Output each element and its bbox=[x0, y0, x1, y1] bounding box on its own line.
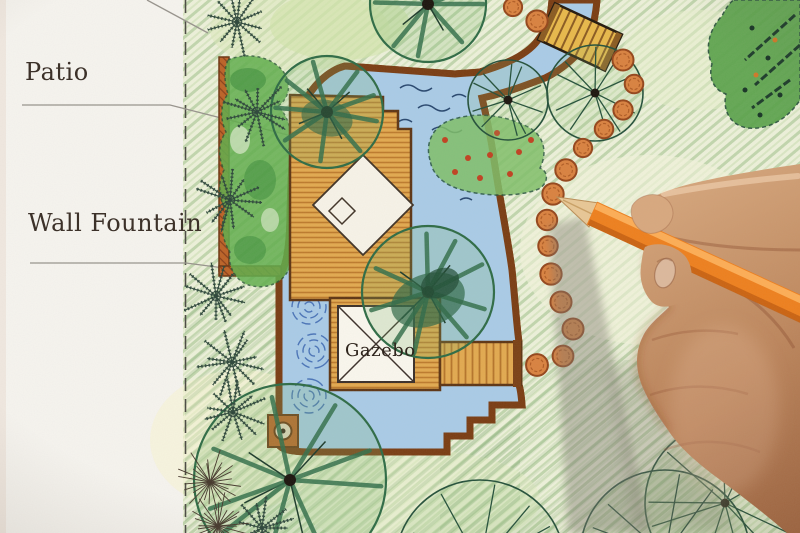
photo-grain bbox=[0, 0, 800, 533]
label-patio: Patio bbox=[25, 60, 89, 84]
label-gazebo: Gazebo bbox=[345, 342, 416, 360]
garden-plan-drawing bbox=[0, 0, 800, 533]
photo-of-garden-plan: Patio Wall Fountain Gazebo bbox=[0, 0, 800, 533]
label-wall-fountain: Wall Fountain bbox=[28, 211, 202, 235]
